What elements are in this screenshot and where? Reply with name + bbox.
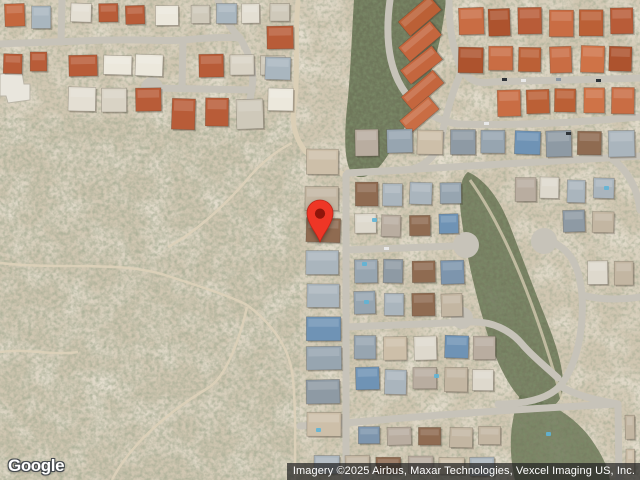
pin-body: [307, 200, 333, 242]
google-logo[interactable]: Google: [8, 457, 64, 474]
attribution-text: Imagery ©2025 Airbus, Maxar Technologies…: [293, 465, 635, 477]
attribution-bar: Imagery ©2025 Airbus, Maxar Technologies…: [287, 463, 640, 480]
map-viewport[interactable]: Google Imagery ©2025 Airbus, Maxar Techn…: [0, 0, 640, 480]
pin-dot: [315, 209, 325, 219]
map-pin[interactable]: [306, 199, 334, 243]
